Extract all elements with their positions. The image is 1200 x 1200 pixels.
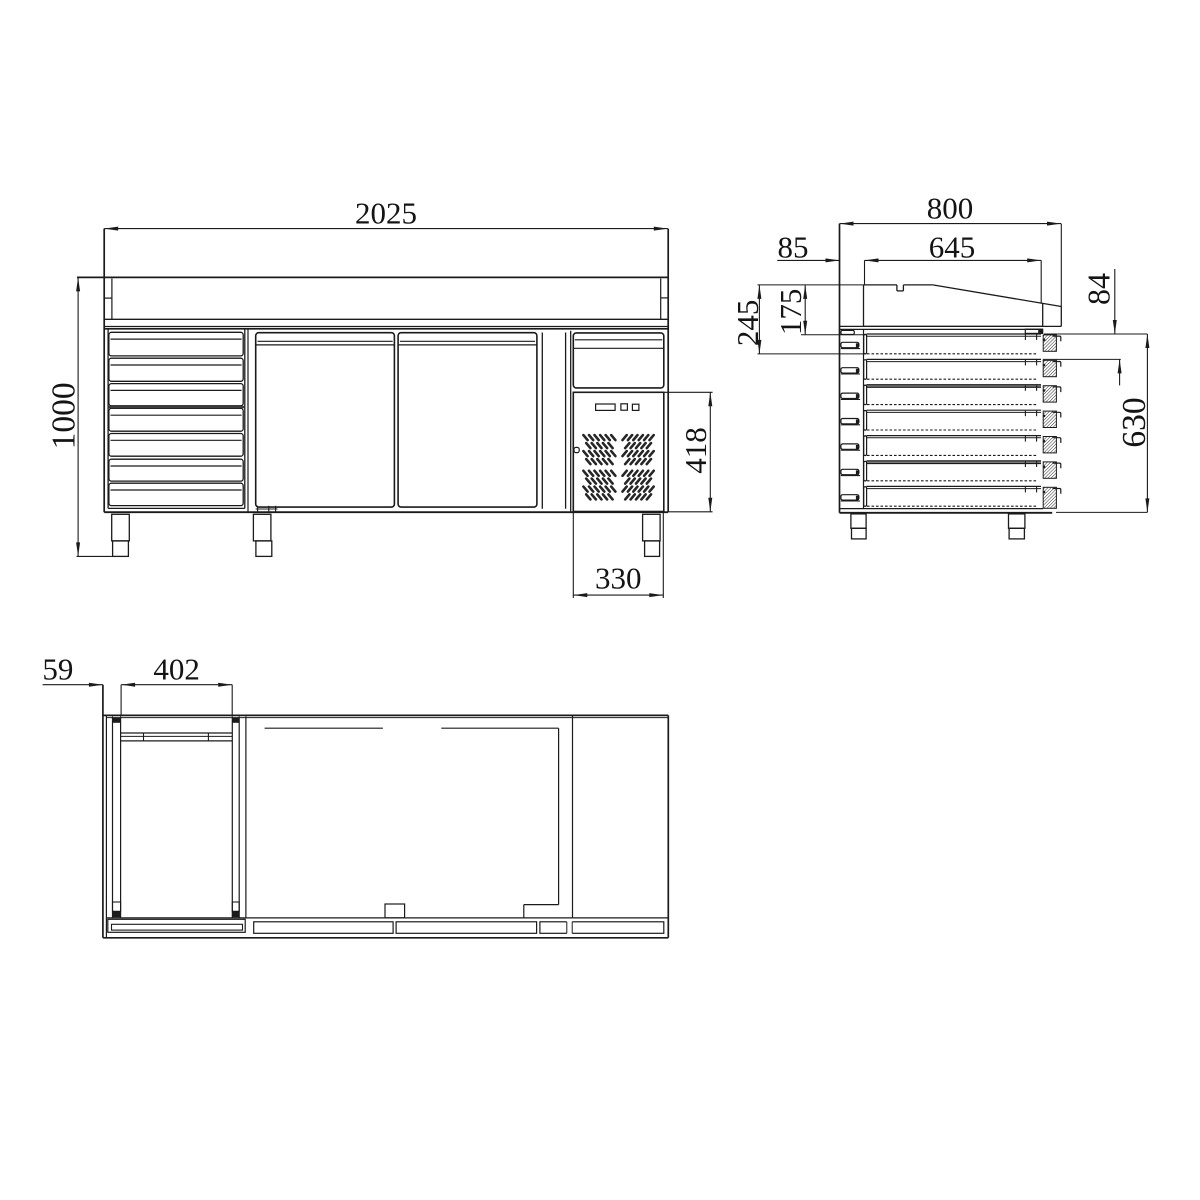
svg-text:1000: 1000 (45, 382, 82, 449)
svg-text:330: 330 (595, 561, 642, 596)
svg-text:85: 85 (778, 230, 809, 265)
svg-text:84: 84 (1081, 273, 1117, 305)
svg-text:402: 402 (153, 652, 200, 687)
svg-text:800: 800 (927, 191, 974, 226)
svg-text:645: 645 (929, 230, 976, 265)
svg-text:175: 175 (773, 289, 808, 336)
svg-text:59: 59 (42, 652, 73, 687)
svg-text:2025: 2025 (355, 196, 417, 231)
svg-text:418: 418 (678, 427, 713, 474)
svg-text:630: 630 (1116, 397, 1153, 447)
svg-text:245: 245 (730, 300, 765, 347)
